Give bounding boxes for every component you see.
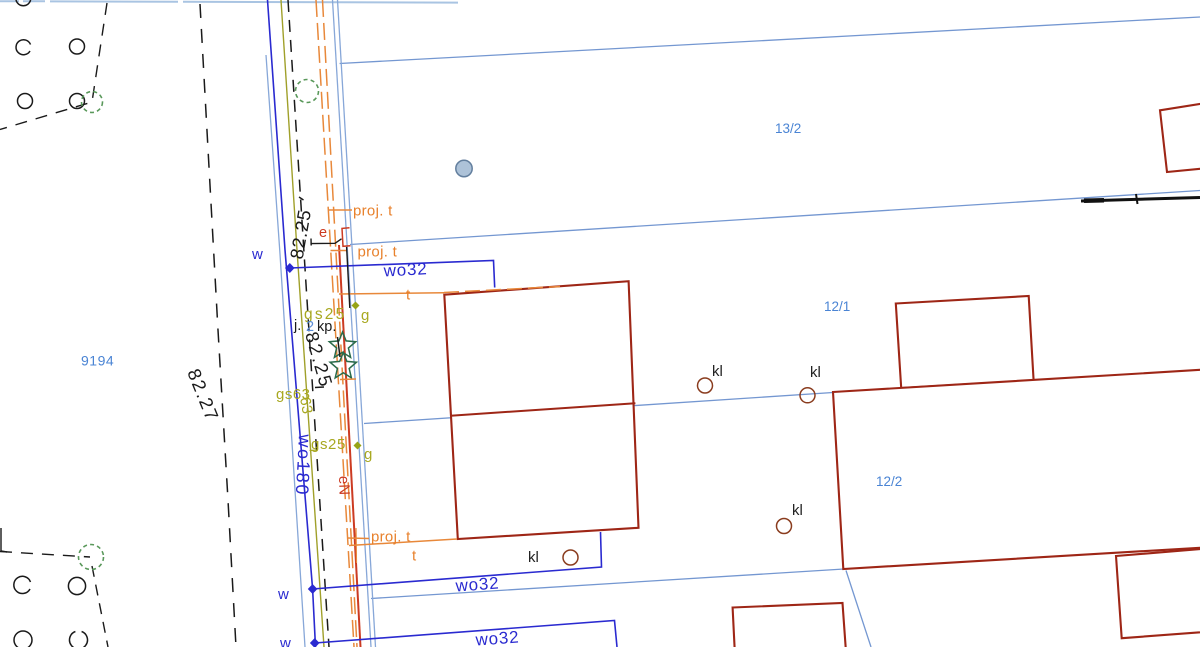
svg-text:eN: eN [335,476,353,496]
svg-text:12/2: 12/2 [876,474,902,489]
svg-text:proj. t: proj. t [358,244,398,261]
svg-text:kl: kl [810,364,821,381]
svg-text:proj. t: proj. t [353,203,393,220]
svg-text:e: e [319,225,327,241]
svg-text:12/1: 12/1 [824,299,850,314]
svg-text:13/2: 13/2 [775,121,801,136]
svg-text:g: g [364,446,372,463]
svg-text:wo32: wo32 [454,573,500,595]
svg-text:j.: j. [293,318,301,334]
svg-text:wo32: wo32 [474,627,520,647]
svg-text:g: g [361,307,369,324]
svg-text:kl: kl [792,502,803,519]
svg-text:w: w [279,635,291,647]
svg-text:63: 63 [296,396,316,415]
svg-text:9194: 9194 [81,353,114,369]
svg-text:wo32: wo32 [382,259,428,280]
svg-text:w: w [277,586,289,603]
svg-text:w: w [251,246,263,263]
svg-text:kl: kl [528,549,539,566]
svg-text:proj. t: proj. t [371,529,411,546]
svg-text:gs25: gs25 [311,436,346,453]
svg-text:kl: kl [712,363,723,380]
